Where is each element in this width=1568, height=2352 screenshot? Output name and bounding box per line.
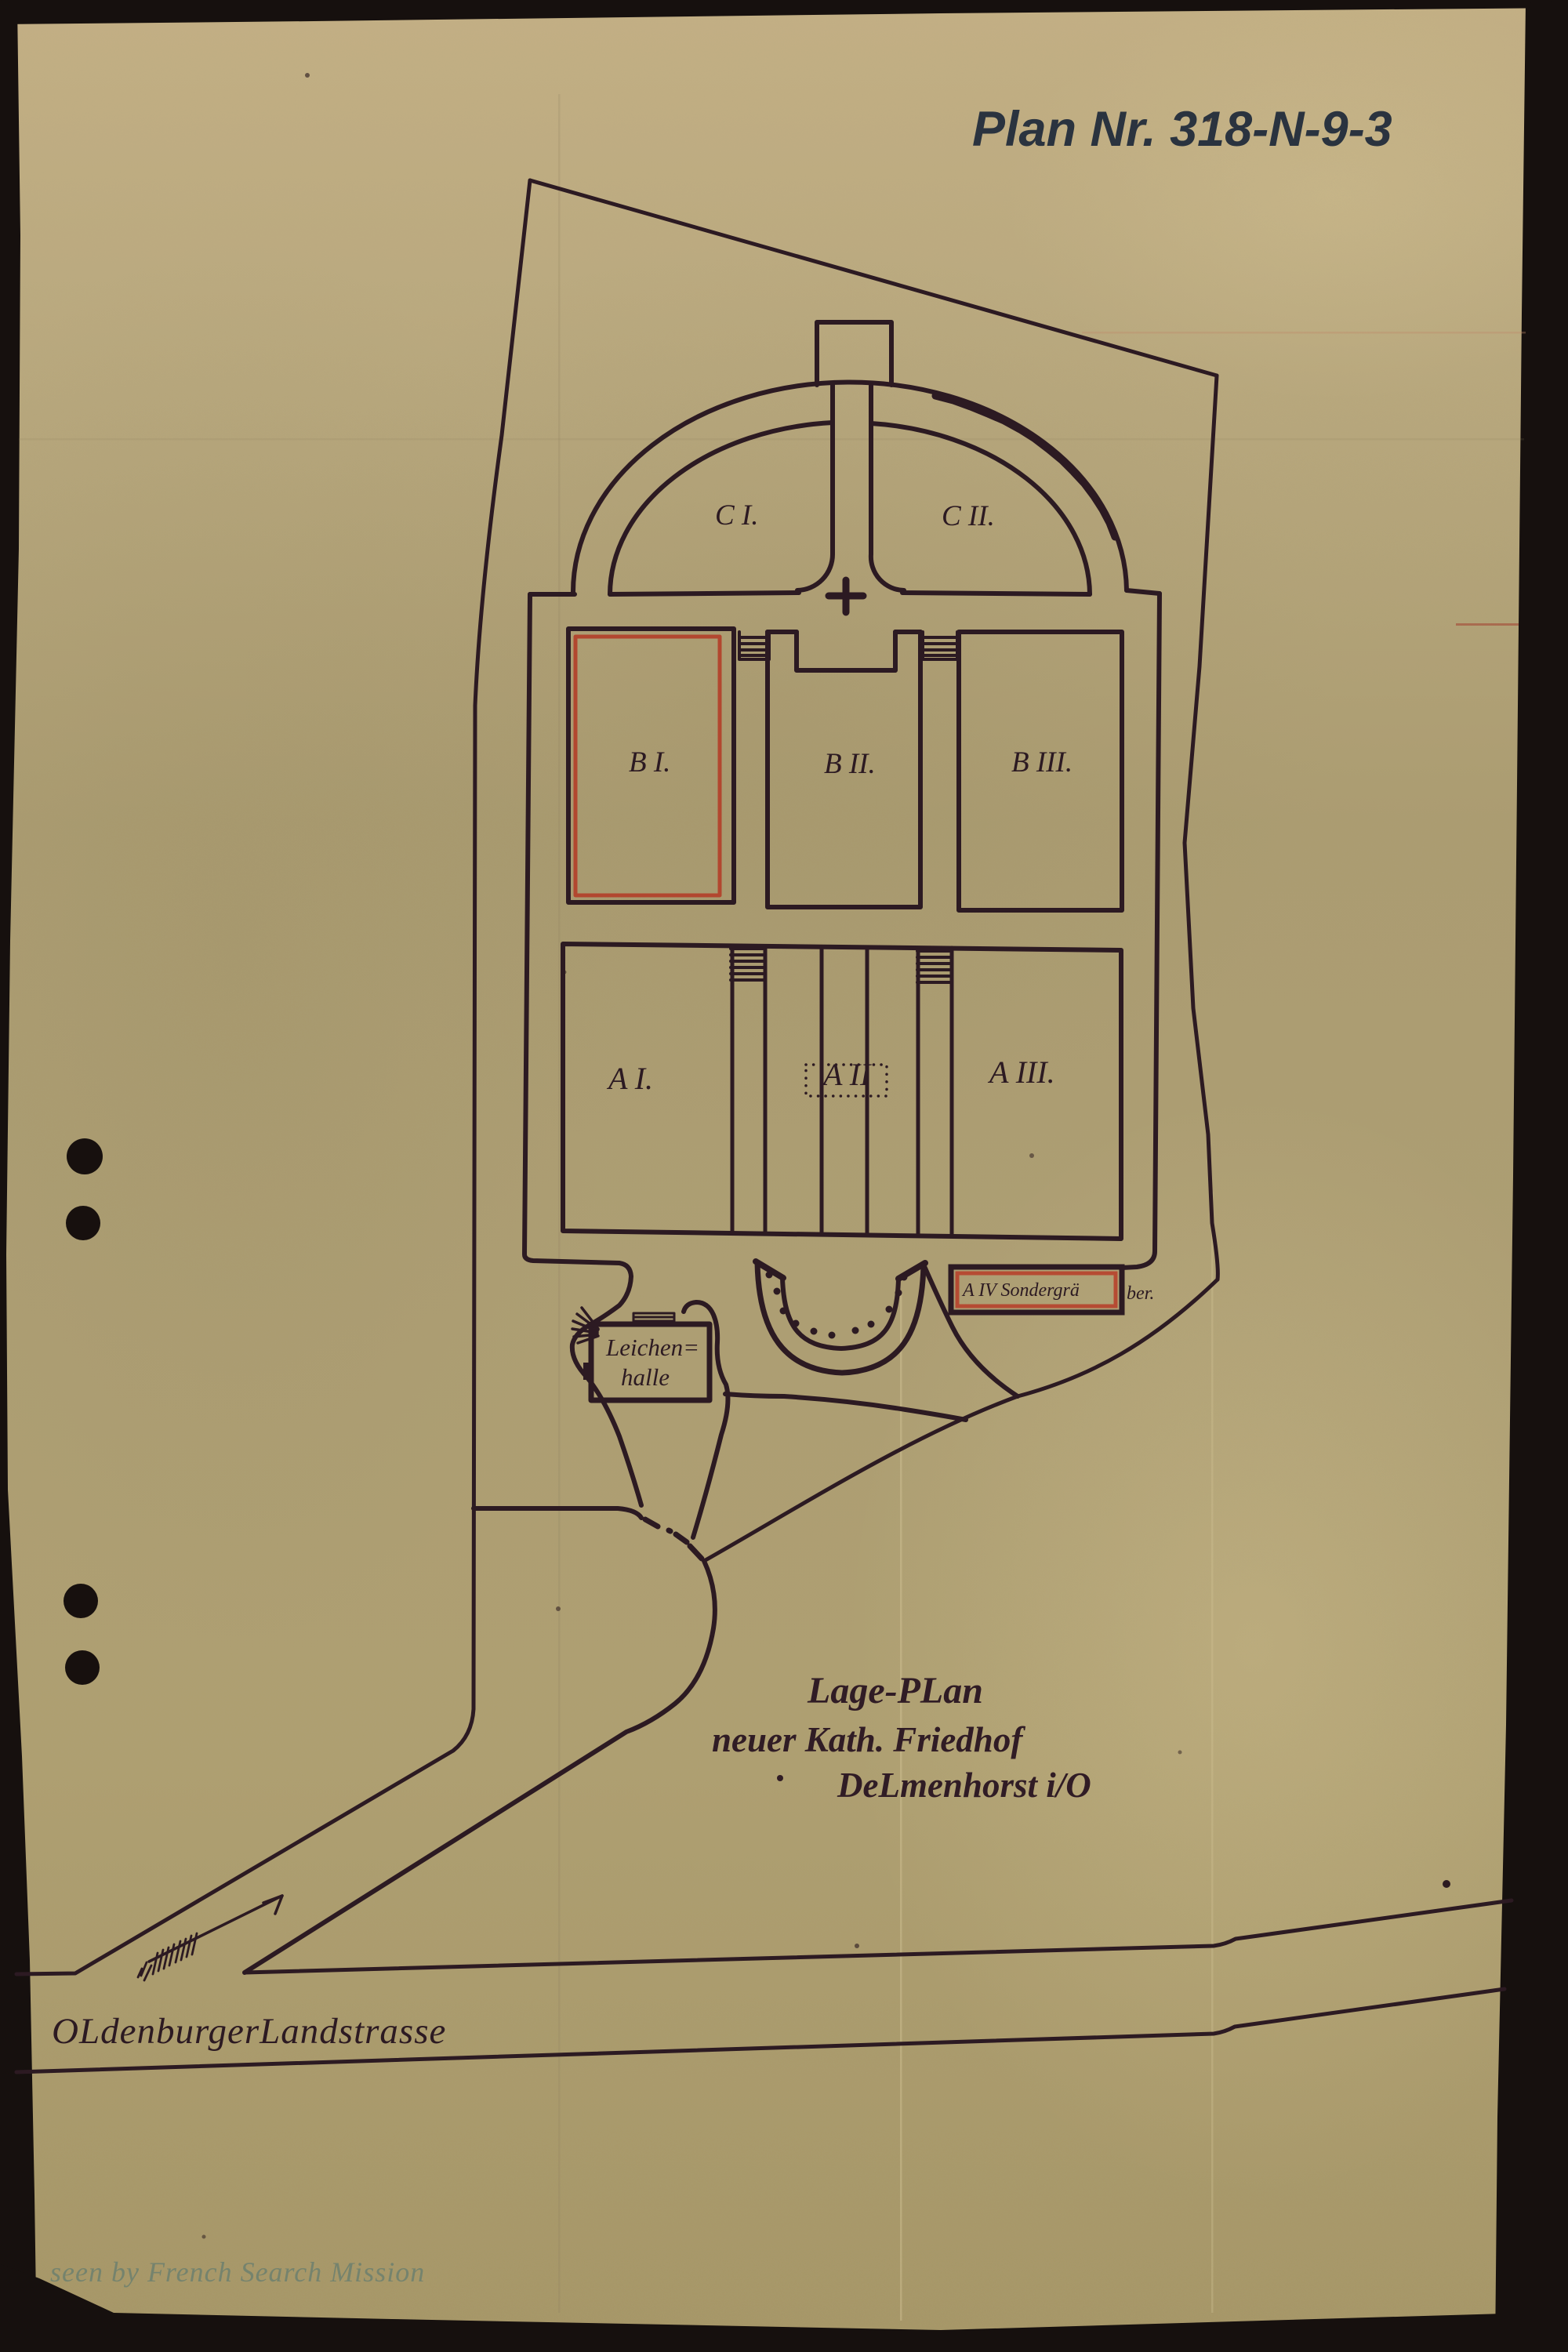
svg-text:halle: halle	[621, 1363, 670, 1391]
svg-text:DeLmenhorst i/O: DeLmenhorst i/O	[837, 1766, 1091, 1805]
svg-text:Lage-PLan: Lage-PLan	[807, 1670, 983, 1711]
svg-text:ber.: ber.	[1127, 1283, 1154, 1304]
svg-text:C II.: C II.	[942, 500, 995, 532]
svg-text:A III.: A III.	[987, 1054, 1055, 1090]
svg-text:B III.: B III.	[1011, 746, 1073, 779]
svg-text:A II: A II	[821, 1057, 872, 1092]
svg-text:Leichen=: Leichen=	[605, 1334, 699, 1361]
svg-text:B II.: B II.	[824, 748, 876, 780]
svg-text:B I.: B I.	[629, 746, 670, 779]
svg-text:Plan Nr. 318-N-9-3: Plan Nr. 318-N-9-3	[972, 102, 1392, 157]
svg-text:A I.: A I.	[606, 1061, 653, 1096]
svg-text:seen by French Search Mission: seen by French Search Mission	[50, 2256, 425, 2288]
svg-text:OLdenburgerLandstrasse: OLdenburgerLandstrasse	[52, 2011, 446, 2052]
svg-text:C I.: C I.	[715, 499, 759, 532]
svg-text:A IV Sondergrä: A IV Sondergrä	[961, 1280, 1080, 1301]
svg-text:neuer Kath. Friedhof: neuer Kath. Friedhof	[712, 1720, 1025, 1759]
